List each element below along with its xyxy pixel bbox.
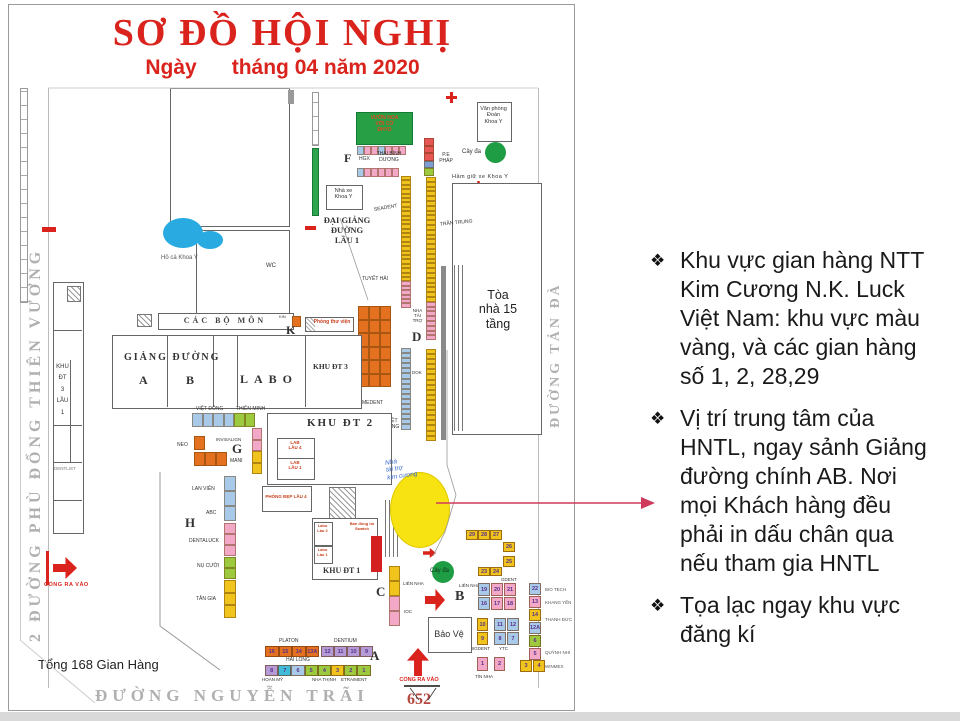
pond-ellipse-1 — [163, 218, 203, 248]
stall-cell-numbered: 14 — [292, 646, 306, 657]
stall-cell — [252, 451, 262, 463]
neo-row — [194, 452, 227, 466]
banyan-top-tree — [485, 142, 506, 163]
stall-cell-numbered: 8 — [265, 665, 278, 676]
platon-row: 16151413A — [265, 646, 319, 657]
main-hall-label: ĐẠI GIẢNG ĐƯỜNG LẦU 1 — [322, 216, 372, 245]
zone-g-letter: G — [232, 442, 242, 457]
parking-basement-label: Hầm giữ xe Khoa Y — [452, 174, 508, 180]
stall-cell — [426, 436, 436, 441]
hai-long-row: 87654321 — [265, 665, 371, 676]
stall-cell-numbered: 7 — [507, 632, 519, 645]
stall-cell-numbered: 11 — [494, 618, 506, 631]
hoan-my-label: HOÀN MỸ — [262, 677, 283, 682]
stall-cell — [424, 146, 434, 154]
row-23-24: 2324 — [478, 567, 502, 576]
stall-cell — [369, 320, 380, 334]
ytc-label: YTC — [499, 646, 508, 651]
stall-cell — [224, 523, 236, 534]
banyan-bottom-label: Cây đa — [430, 568, 449, 575]
bike-shed-label: Nhà xe Khoa Y — [326, 188, 361, 201]
lien-nha-c-label: LIÊN NHA — [403, 581, 424, 586]
sponsor-strip-label: NHA TÀI TRỢ — [410, 308, 425, 324]
stall-cell — [389, 581, 400, 596]
stall-cell-numbered: 6 — [529, 635, 541, 647]
lnb-hatch — [67, 286, 81, 302]
stall-cell — [380, 333, 391, 347]
stall-cell — [424, 168, 434, 176]
khu-dt3-label: KHU ĐT 3 — [313, 363, 348, 372]
gate-bottom-label: CỔNG RA VÀO — [394, 677, 444, 683]
stall-cell — [369, 360, 380, 374]
garden-label: VƯỜN HOA VỚI CỜ ĐHYD — [356, 116, 413, 133]
stall-cell-numbered: 21 — [504, 583, 516, 596]
stall-cell-numbered: 3 — [331, 665, 344, 676]
diamond-bullet-icon: ❖ — [650, 251, 680, 271]
khu-dt1-label: KHU ĐT 1 — [323, 566, 360, 575]
lecture-divider-2 — [213, 335, 214, 407]
stall-cell-numbered: 5 — [305, 665, 318, 676]
f-stall-row-2 — [357, 168, 399, 177]
lnb-line-2 — [53, 425, 82, 426]
lab1-label: LAB LẦU 1 — [277, 460, 313, 470]
tower-hatch-strip — [454, 265, 464, 431]
lnb-vline — [70, 360, 71, 462]
lecture-divider-1 — [167, 335, 168, 407]
stall-cell — [203, 413, 214, 427]
pe-phap-label: P.E PHÁP — [437, 153, 455, 165]
thien-minh-label: THIÊN MINH — [236, 407, 265, 413]
stall-cell — [224, 534, 236, 545]
neo-label: NEO — [177, 443, 188, 449]
lien-nha-b-label: LIÊN NHA — [459, 583, 480, 588]
ytc-grid: 111287 — [494, 618, 520, 645]
stall-cell — [380, 306, 391, 320]
red-dash-hall — [305, 226, 316, 230]
stall-cell — [224, 476, 236, 491]
stall-cell — [358, 306, 369, 320]
stall-cell-numbered: 13 — [529, 596, 541, 608]
gdent-label: GDENT — [501, 577, 517, 582]
wc-label: WC — [266, 263, 276, 270]
labo1-label: Labo Lầu 1 — [314, 548, 331, 557]
stall-cell-numbered: 12 — [507, 618, 519, 631]
zone-b-letter: B — [455, 589, 464, 605]
h-col-yellow — [224, 580, 236, 618]
ban-dong-ho-label: Bán đồng hồ Swatch — [349, 522, 375, 531]
note-text-1: Khu vực gian hàng NTT Kim Cương N.K. Luc… — [680, 246, 924, 391]
stall-cell — [194, 436, 205, 450]
zone-d-letter: D — [412, 330, 421, 345]
dentium-row: 1211109 — [321, 646, 373, 657]
stall-cell — [252, 440, 262, 452]
stall-cell-numbered: 20 — [491, 583, 503, 596]
page-date: Ngày tháng 04 năm 2020 — [55, 56, 510, 80]
neo-cell — [194, 436, 205, 450]
note-text-3: Tọa lạc ngay khu vực đăng kí — [680, 591, 900, 649]
tan-gia-label: TÂN GIA — [196, 597, 216, 603]
note-bullet-1: ❖ Khu vực gian hàng NTT Kim Cương N.K. L… — [650, 246, 950, 391]
total-stalls-label: Tổng 168 Gian Hàng — [38, 658, 159, 673]
stall-cell — [224, 557, 236, 568]
stall-cell-numbered: 19 — [478, 583, 490, 596]
page-edge-bottom — [0, 712, 960, 721]
stall-cell-numbered: 7 — [278, 665, 291, 676]
right-stall-col: 22131412A65 — [529, 583, 541, 660]
hai-long-label: HẢI LONG — [286, 658, 310, 664]
stall-cell — [357, 146, 364, 155]
thanh-duc-label: THANH ĐỨC — [545, 617, 572, 622]
note-bullet-3: ❖ Tọa lạc ngay khu vực đăng kí — [650, 591, 950, 649]
stall-cell — [224, 568, 236, 579]
stall-cell — [385, 168, 392, 177]
stall-cell-numbered: 2 — [494, 657, 505, 671]
stall-cell — [369, 333, 380, 347]
lien-nha-grid: 192021161718 — [478, 583, 518, 610]
stall-cell — [192, 413, 203, 427]
stall-cell-numbered: 16 — [265, 646, 279, 657]
stall-cell — [380, 347, 391, 361]
khu-dt3-lau1-label: KHU ĐT 3 LẦU 1 — [55, 362, 70, 419]
zone-f-letter: F — [344, 152, 351, 166]
pond-label: Hồ cá Khoa Y — [161, 255, 198, 262]
notes-panel: ❖ Khu vực gian hàng NTT Kim Cương N.K. L… — [650, 246, 950, 662]
wall-gray-bar — [441, 266, 446, 440]
lab4-label: LAB LẦU 4 — [277, 440, 313, 450]
stall-cell-numbered: 4 — [533, 660, 545, 672]
stall-cell — [224, 491, 236, 506]
stall-cell — [224, 605, 236, 618]
quynh-nhi-label: QUỲNH NHI — [545, 650, 570, 655]
stall-cell — [371, 168, 378, 177]
stall-cell-numbered: 27 — [490, 530, 502, 540]
left-gate-label: CỔNG RA VÀO — [44, 582, 89, 588]
bio-tech-label: BIO TECH — [545, 587, 566, 592]
stall-cell-numbered: 6 — [291, 665, 304, 676]
mani-label: MANI — [230, 459, 243, 465]
cac-bo-mon-label: CÁC BỘ MÔN — [158, 316, 292, 325]
stall-cell — [369, 347, 380, 361]
tuyet-hai-label: TUYẾT HẢI — [362, 277, 388, 283]
dentlist-label: DENTLIST — [54, 466, 76, 471]
stall-cell — [213, 413, 224, 427]
stall-cell-numbered: 2 — [344, 665, 357, 676]
stall-cell — [224, 506, 236, 521]
row-29-28-27: 292827 — [466, 530, 502, 540]
kin-label: KIN — [279, 315, 286, 320]
lecture-divider-3 — [237, 335, 238, 407]
e-lower-strip — [401, 348, 411, 430]
lecture-divider-4 — [305, 335, 306, 407]
bigdent-col: 109 — [477, 618, 488, 645]
tower-label: Tòa nhà 15 tầng — [464, 288, 532, 331]
stall-cell-numbered: 8 — [494, 632, 506, 645]
e-stall-strip — [401, 176, 411, 308]
street-name-left: 2 ĐƯỜNG PHÙ ĐỔNG THIÊN VƯƠNG — [27, 248, 45, 642]
stall-cell-numbered: 10 — [477, 618, 488, 631]
wall-gray-segments — [312, 92, 319, 146]
stall-cell-numbered: 25 — [503, 556, 515, 567]
bigdent-label: BIGDENT — [470, 646, 490, 651]
labo2-label: Labo Lầu 2 — [314, 524, 331, 533]
pair-3-4: 34 — [520, 660, 545, 672]
ioc-label: IOC — [404, 609, 412, 614]
cell-25: 25 — [503, 556, 515, 567]
h-col-green — [224, 557, 236, 579]
stall-cell-numbered: 24 — [490, 567, 502, 576]
winmex-label: WINMEX — [545, 664, 564, 669]
lnb-line-1 — [53, 330, 82, 331]
d-strip-top — [424, 138, 434, 176]
d-stall-strip — [426, 177, 436, 340]
sponsor-ellipse — [390, 472, 450, 548]
etraiment-label: ETRAIMENT — [341, 677, 367, 682]
stall-cell — [224, 413, 235, 427]
medent-label: MEDENT — [362, 401, 383, 407]
nu-cuoi-label: NỤ CƯỜI — [197, 564, 219, 570]
gate-number: 652 — [407, 691, 431, 709]
g-stall-row — [192, 413, 255, 427]
stall-cell — [216, 452, 227, 466]
hatch-box-left — [137, 314, 152, 327]
stall-cell-numbered: 29 — [466, 530, 478, 540]
hall-a-label: A — [139, 374, 148, 388]
platon-label: PLATON — [279, 639, 299, 645]
red-dash-street — [42, 227, 56, 232]
dentaluck-label: DENTALUCK — [189, 539, 219, 545]
street-name-bottom: ĐƯỜNG NGUYỄN TRÃI — [95, 686, 425, 706]
stall-cell-numbered: 1 — [477, 657, 488, 671]
e-orange-block — [358, 306, 393, 387]
stall-cell — [380, 360, 391, 374]
stall-cell-numbered: 12A — [529, 622, 541, 634]
d-lower-strip — [426, 349, 436, 441]
zone-c-letter: C — [376, 585, 385, 600]
abc-label: ABC — [206, 511, 216, 517]
lecture-hall-label: GIẢNG ĐƯỜNG — [124, 352, 220, 364]
stall-cell — [357, 168, 364, 177]
stall-cell — [245, 413, 256, 427]
stall-cell — [426, 335, 436, 340]
stall-cell-numbered: 5 — [529, 648, 541, 660]
stall-cell — [378, 168, 385, 177]
stall-cell — [224, 580, 236, 593]
stall-cell — [224, 545, 236, 556]
page-title: SƠ ĐỒ HỘI NGHỊ — [55, 12, 510, 56]
stall-cell — [364, 146, 371, 155]
stall-cell-numbered: 12 — [321, 646, 334, 657]
dok-label: DOK — [412, 370, 422, 375]
stall-cell-numbered: 14 — [529, 609, 541, 621]
note-text-2: Vị trí trung tâm của HNTL, ngay sảnh Giả… — [680, 404, 927, 578]
stall-cell — [358, 320, 369, 334]
stall-cell — [194, 452, 205, 466]
stall-cell-numbered: 26 — [503, 542, 515, 552]
banyan-top-label: Cây đa — [462, 149, 481, 156]
lnb-line-3 — [53, 462, 82, 463]
diamond-bullet-icon: ❖ — [650, 596, 680, 616]
phong-dep-label: PHÒNG ĐẸP LẦU 4 — [264, 494, 308, 499]
street-left-line-inner — [48, 88, 49, 688]
dentium-label: DENTIUM — [334, 639, 357, 645]
stall-cell — [389, 566, 400, 581]
diamond-bullet-icon: ❖ — [650, 409, 680, 429]
cell-26: 26 — [503, 542, 515, 552]
left-gate-bar — [46, 551, 49, 585]
stall-cell — [369, 306, 380, 320]
g-right-col — [252, 428, 262, 474]
office-label: Văn phòng Đoàn Khoa Y — [477, 106, 510, 125]
stall-cell — [252, 428, 262, 440]
stall-cell-numbered: 9 — [477, 632, 488, 645]
stall-cell-numbered: 3 — [520, 660, 532, 672]
h-col-blue — [224, 476, 236, 521]
viet-dong-label: VIỆT ĐÔNG — [196, 407, 223, 413]
stall-cell-numbered: 28 — [478, 530, 490, 540]
hgx-label: HGX — [359, 157, 370, 163]
stall-cell — [364, 168, 371, 177]
lnb-line-4 — [53, 500, 82, 501]
stall-cell — [424, 161, 434, 169]
library-label: Phòng thư viện — [312, 320, 352, 326]
stall-cell-numbered: 1 — [357, 665, 370, 676]
lan-vien-label: LAN VIÊN — [192, 487, 215, 493]
building-top-left-tab — [288, 90, 294, 104]
red-bar — [371, 536, 382, 572]
thai-binh-duong-label: THÁI BÌNH DƯƠNG — [372, 152, 406, 164]
h-col-pink — [224, 523, 236, 556]
stair-hatch — [329, 487, 356, 521]
khang-yen-label: KHANG YẾN — [545, 600, 571, 605]
tin-nha-label: TÍN NHA — [475, 674, 493, 679]
nha-thinh-label: NHA THỊNH — [312, 677, 336, 682]
stall-cell-numbered: 4 — [318, 665, 331, 676]
conference-map-page: SƠ ĐỒ HỘI NGHỊ Ngày tháng 04 năm 2020 2 … — [0, 0, 960, 721]
stall-cell — [389, 596, 400, 611]
zone-a-letter: A — [370, 649, 379, 664]
stall-cell-numbered: 10 — [347, 646, 360, 657]
stall-cell — [252, 463, 262, 475]
building-top-left — [170, 88, 290, 227]
street-name-right: ĐƯỜNG TẢN ĐÀ — [548, 282, 564, 428]
stall-cell-numbered: 13A — [306, 646, 320, 657]
c-stall-col — [389, 566, 400, 626]
stall-cell — [424, 153, 434, 161]
hedge-green-strip — [312, 148, 319, 216]
stall-cell-numbered: 18 — [504, 597, 516, 610]
stall-cell — [369, 374, 380, 388]
stall-cell — [424, 138, 434, 146]
khu-dt2-label: KHU ĐT 2 — [307, 417, 374, 430]
stall-cell — [380, 374, 391, 388]
stall-cell — [234, 413, 245, 427]
zone-h-letter: H — [185, 516, 195, 531]
stall-cell — [224, 593, 236, 606]
tin-nha-row: 12 — [477, 657, 505, 671]
stall-cell-numbered: 11 — [334, 646, 347, 657]
stall-cell-numbered: 17 — [491, 597, 503, 610]
stall-cell — [392, 168, 399, 177]
stall-cell — [401, 424, 411, 429]
stall-cell-numbered: 16 — [478, 597, 490, 610]
pond-ellipse-2 — [197, 231, 223, 249]
stall-cell-numbered: 15 — [279, 646, 293, 657]
stall-cell — [380, 320, 391, 334]
security-label: Bảo Vệ — [428, 629, 470, 639]
stall-cell-numbered: 23 — [478, 567, 490, 576]
stall-cell — [389, 611, 400, 626]
labo-label: LABO — [240, 373, 302, 387]
hall-b-label: B — [186, 374, 194, 388]
stall-cell — [205, 452, 216, 466]
stall-cell-numbered: 22 — [529, 583, 541, 595]
note-bullet-2: ❖ Vị trí trung tâm của HNTL, ngay sảnh G… — [650, 404, 950, 578]
